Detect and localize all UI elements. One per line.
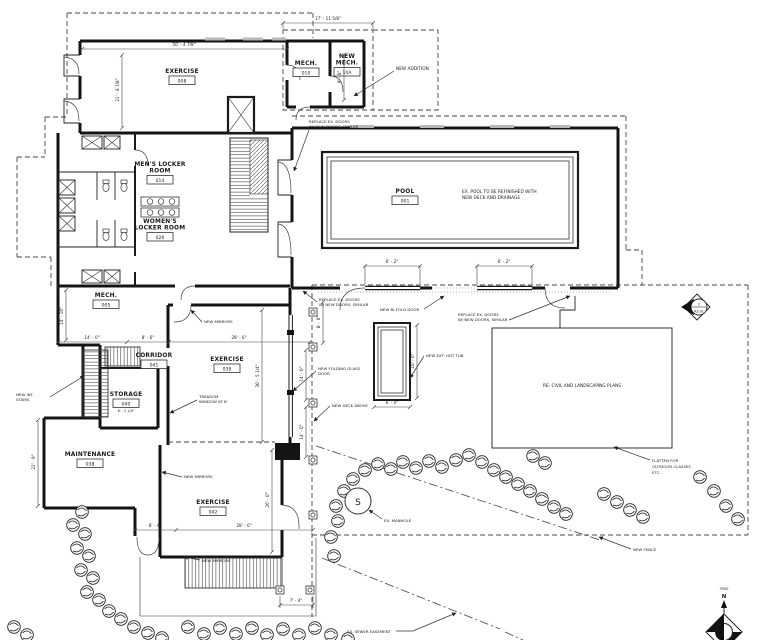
svg-text:MECH.: MECH. [295,61,317,67]
svg-text:STORAGE: STORAGE [110,392,143,398]
dim-28-6-a: 28' - 6" [231,335,246,340]
floor-plan-drawing: RE: CIVIL AND LANDSCAPING PLANS EXERCISE… [0,0,768,640]
fixtures [59,136,179,283]
dim-tub-height: 10' - 0" [410,353,415,368]
north-n-label: N [722,594,727,600]
dim-deck-14-b: 14' - 0" [299,424,304,439]
toilet [121,180,127,192]
svg-text:038: 038 [86,462,95,468]
room-label-womens-locker-026: WOMEN'S LOCKER ROOM 026 [135,219,186,241]
storage-dim: 8' - 2 1/4" [118,409,135,413]
note-hot-tub: NEW EXT. HOT TUB [426,353,464,358]
note-flatten: FLATTEN FOR [652,458,678,463]
svg-text:NEW DECK AND DRAINAGE: NEW DECK AND DRAINAGE [462,195,520,201]
note-new-addition: NEW ADDITION [396,66,429,72]
svg-text:W/ NEW DOORS, SIMILAR: W/ NEW DOORS, SIMILAR [458,317,508,322]
section-marker: 2 A3.01 [681,294,710,320]
dim-deck-14-a: 14' - 0" [299,366,304,381]
note-pool: EX. POOL TO BE REFINISHED WITH [462,189,537,195]
svg-text:MECH.: MECH. [336,61,358,67]
svg-text:MEN'S LOCKER: MEN'S LOCKER [134,162,186,168]
note-manhole: EX. MANHOLE [384,518,412,523]
svg-text:026: 026 [156,235,165,241]
dim-ex008-height: 21' - 8 7/8" [115,78,120,101]
room-label-pool-001: POOL 001 [392,189,418,205]
note-fence: NEW FENCE [633,547,657,552]
room-label-exercise-042: EXERCISE 042 [196,500,230,516]
svg-text:LOCKER ROOM: LOCKER ROOM [135,226,186,232]
dim-tub-width: 6' - 0" [386,400,399,405]
dim-ex008-width: 50' - 4 7/8" [172,42,195,47]
svg-text:MECH.: MECH. [95,293,117,299]
svg-text:W/ NEW DOORS, SIMILAR: W/ NEW DOORS, SIMILAR [309,124,359,129]
vanity-sinks [141,197,179,217]
svg-text:014: 014 [156,178,165,184]
svg-text:010: 010 [302,71,311,77]
stairs [83,138,282,588]
dim-7-4: 7' - 4" [290,598,303,603]
room-label-mech-010: MECH. 010 [293,61,319,77]
svg-text:CORRIDOR: CORRIDOR [136,353,173,359]
hot-tub [374,323,410,400]
section-sheet: A3.01 [694,310,704,314]
note-sewer-easement: EX. SEWER EASEMENT [347,629,392,634]
civil-plan-area: RE: CIVIL AND LANDSCAPING PLANS [492,296,672,448]
dim-mech005-height: 14' - 10" [59,307,64,325]
civil-plan-note: RE: CIVIL AND LANDSCAPING PLANS [543,383,621,389]
svg-text:039: 039 [223,367,232,373]
svg-text:005: 005 [102,303,111,309]
dim-pool-door-a: 6' - 2" [386,259,399,264]
floor-plan-sheet: RE: CIVIL AND LANDSCAPING PLANS EXERCISE… [0,0,768,640]
svg-text:EXERCISE: EXERCISE [165,69,199,75]
svg-text:EXERCISE: EXERCISE [210,357,244,363]
svg-text:MAINTENANCE: MAINTENANCE [65,452,116,458]
section-number: 2 [698,303,700,307]
elevator-shaft [228,97,254,133]
room-label-maintenance-038: MAINTENANCE 038 [65,452,116,468]
toilet [121,229,127,241]
dim-8-6: 8' - 6" [142,335,155,340]
svg-text:OUTDOOR CLASSES: OUTDOOR CLASSES [652,464,691,469]
easement-line-lower [322,558,523,640]
svg-text:ROOM: ROOM [149,169,170,175]
dim-8-0: 8' - 0" [316,316,321,329]
dim-maint-height: 22' - 9" [31,454,36,469]
bifold-door-panels [365,286,532,289]
room-label-mens-locker-014: MEN'S LOCKER ROOM 014 [134,162,186,184]
svg-text:NEW: NEW [339,54,355,60]
room-label-exercise-039: EXERCISE 039 [210,357,244,373]
north-arrow: TRUE N [706,587,742,640]
note-mirrors-c: NEW MIRRORS [202,558,231,563]
toilet [103,180,109,192]
north-true-label: TRUE [718,587,728,591]
dim-8-4: 8' - 4" [149,523,162,528]
new-interior-stair [83,350,108,417]
toilet [103,229,109,241]
note-bifold: NEW BI-FOLD DOOR [380,307,419,312]
dim-pool-door-b: 6' - 2" [498,259,511,264]
note-mirrors-b: NEW MIRRORS [184,474,213,479]
svg-text:ETC.: ETC. [652,470,661,475]
dim-addition-width: 17' - 11 5/8" [315,16,341,21]
room-label-exercise-008: EXERCISE 008 [165,69,199,85]
svg-text:STAIRS: STAIRS [16,397,30,402]
svg-text:041: 041 [150,363,159,369]
room-label-corridor-041: CORRIDOR 041 [136,353,173,369]
svg-text:WINDOW AT 8': WINDOW AT 8' [199,399,228,404]
note-mirrors-a: NEW MIRRORS [204,319,233,324]
deck-stair [185,558,282,588]
shower-lockers [59,136,120,283]
room-label-storage-040: STORAGE 040 8' - 2 1/4" [110,392,143,413]
room-label-mech-005: MECH. 005 [93,293,119,309]
svg-text:WOMEN'S: WOMEN'S [143,219,177,225]
svg-text:EXERCISE: EXERCISE [196,500,230,506]
svg-text:DOOR: DOOR [318,371,330,376]
note-deck-above: NEW DECK ABOVE [332,403,368,408]
shrubs [8,449,745,640]
manhole-marker: S [345,488,371,514]
pool [322,152,578,248]
dim-28-6-b: 28' - 6" [236,523,251,528]
svg-text:W/ NEW DOORS, SIMILAR: W/ NEW DOORS, SIMILAR [319,302,369,307]
svg-text:040: 040 [122,402,131,408]
dim-14-0: 14' - 0" [84,335,99,340]
svg-text:008: 008 [178,79,187,85]
dim-ex039-height: 30' - 5 1/4" [255,364,260,387]
locker-stair [230,138,268,232]
manhole-letter: S [355,498,361,508]
corner-wall-block [275,443,300,460]
svg-text:POOL: POOL [396,189,415,195]
dim-mech-height: 9' - 0" [337,71,342,84]
dim-ex042-height: 26' - 0" [265,492,270,507]
svg-text:042: 042 [209,510,218,516]
svg-text:001: 001 [401,199,410,205]
